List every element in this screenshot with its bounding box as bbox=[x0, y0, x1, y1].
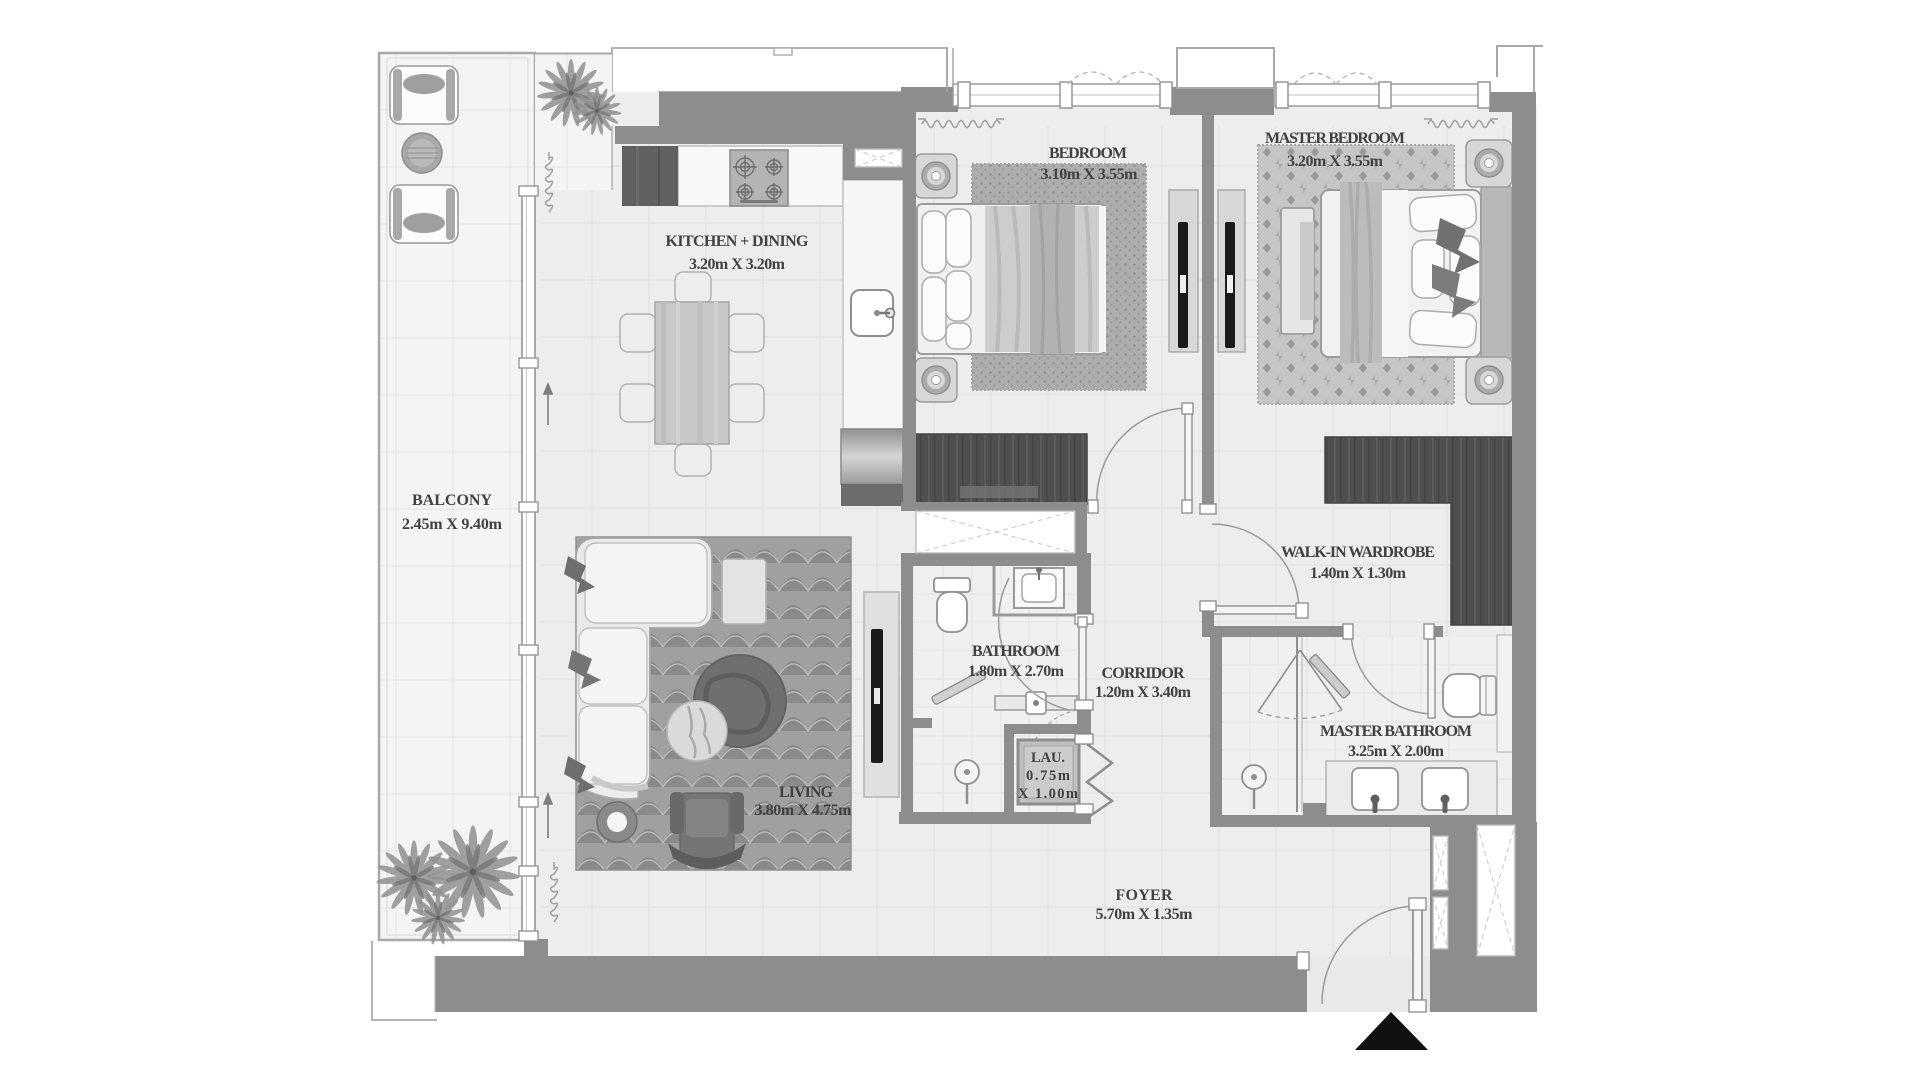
svg-text:3.10m X 3.55m: 3.10m X 3.55m bbox=[1041, 166, 1139, 183]
svg-text:FOYER: FOYER bbox=[1116, 887, 1173, 904]
svg-text:KITCHEN + DINING: KITCHEN + DINING bbox=[666, 233, 810, 250]
svg-text:X 1.00m: X 1.00m bbox=[1018, 786, 1078, 802]
svg-text:3.20m X 3.20m: 3.20m X 3.20m bbox=[689, 256, 786, 273]
svg-text:LAU.: LAU. bbox=[1031, 750, 1065, 766]
svg-text:WALK-IN WARDROBE: WALK-IN WARDROBE bbox=[1281, 544, 1435, 561]
svg-text:1.20m X 3.40m: 1.20m X 3.40m bbox=[1095, 684, 1192, 701]
svg-text:MASTER BATHROOM: MASTER BATHROOM bbox=[1320, 723, 1472, 740]
svg-text:LIVING: LIVING bbox=[779, 784, 834, 801]
svg-text:3.20m X 3.55m: 3.20m X 3.55m bbox=[1287, 153, 1384, 170]
svg-text:CORRIDOR: CORRIDOR bbox=[1102, 665, 1185, 682]
svg-text:5.70m X 1.35m: 5.70m X 1.35m bbox=[1096, 906, 1194, 923]
svg-text:3.80m X 4.75m: 3.80m X 4.75m bbox=[755, 802, 853, 819]
svg-text:1.40m X 1.30m: 1.40m X 1.30m bbox=[1310, 565, 1407, 582]
svg-text:BATHROOM: BATHROOM bbox=[972, 643, 1060, 660]
svg-text:BEDROOM: BEDROOM bbox=[1049, 145, 1127, 162]
svg-text:BALCONY: BALCONY bbox=[412, 492, 492, 509]
svg-text:MASTER BEDROOM: MASTER BEDROOM bbox=[1265, 130, 1405, 147]
svg-text:1.80m X 2.70m: 1.80m X 2.70m bbox=[968, 663, 1065, 680]
svg-text:3.25m X 2.00m: 3.25m X 2.00m bbox=[1348, 743, 1445, 760]
svg-text:2.45m X 9.40m: 2.45m X 9.40m bbox=[402, 516, 503, 533]
